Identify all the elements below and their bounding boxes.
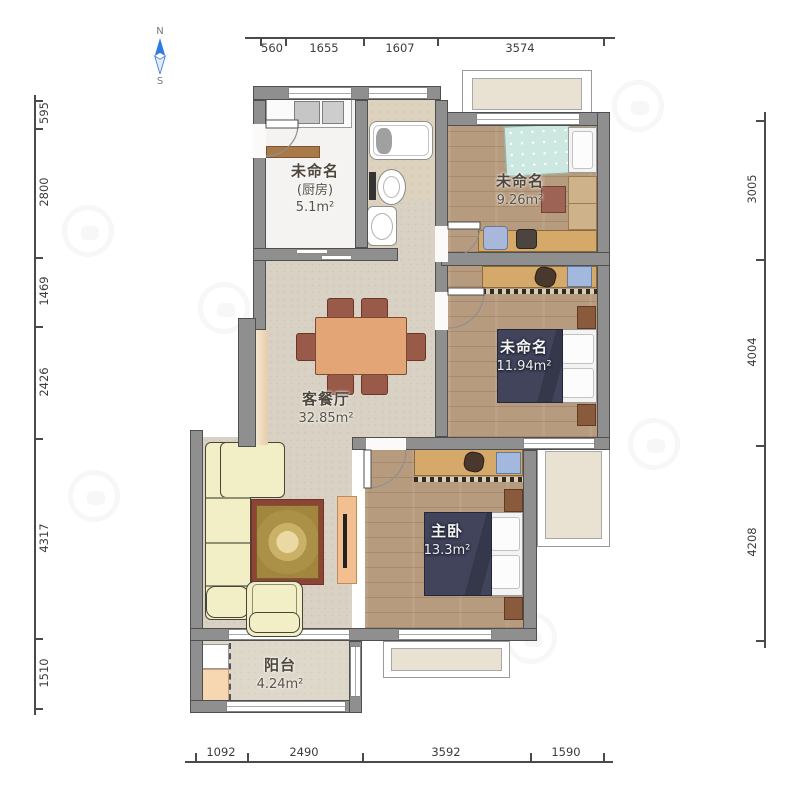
window (523, 438, 595, 449)
dining-chair (327, 298, 354, 319)
dimension-value: 2800 (37, 164, 51, 220)
dimension-tick (437, 38, 439, 46)
dimension-line-top (245, 37, 615, 39)
compass-south-label: S (145, 76, 175, 87)
dimension-line-right (764, 112, 766, 648)
room-name: 阳台 (240, 656, 320, 676)
dimension-tick (247, 753, 249, 761)
sofa-armrest (206, 586, 249, 618)
wall (435, 100, 448, 437)
dimension-tick (363, 38, 365, 46)
bay-window-sill (472, 78, 582, 110)
dimension-value: 3592 (421, 745, 471, 759)
watermark-logo (612, 80, 664, 132)
kitchen-sink (294, 101, 320, 124)
dimension-tick (756, 259, 764, 261)
desk-chair-dark (516, 229, 537, 249)
wardrobe (568, 176, 597, 230)
wall (523, 450, 537, 641)
dimension-line-left (34, 95, 36, 715)
balcony-divider-dashed (229, 643, 231, 700)
room-area: 11.94m² (484, 358, 564, 375)
dimension-value: 1469 (37, 263, 51, 319)
kitchen-stove (322, 101, 344, 124)
dimension-tick (756, 445, 764, 447)
compass-needle-icon (152, 38, 168, 74)
dimension-value: 3574 (495, 41, 545, 55)
room-area: 4.24m² (240, 676, 320, 693)
rug-medallion (256, 505, 319, 579)
wall (441, 252, 610, 266)
bay-window-sill (391, 648, 502, 671)
room-label-living: 客餐厅 32.85m² (286, 390, 366, 427)
toilet-seat (383, 176, 400, 198)
wall (190, 430, 203, 713)
bed-pillow (491, 555, 520, 589)
watermark-logo (62, 205, 114, 257)
dimension-line-bottom (185, 761, 613, 763)
dimension-value: 4317 (37, 510, 51, 566)
dimension-tick (35, 638, 43, 640)
tv-screen (343, 514, 347, 568)
dimension-tick (603, 753, 605, 761)
kitchen-lower-counter (266, 146, 320, 158)
dimension-value: 2426 (37, 354, 51, 410)
dining-chair (405, 333, 426, 361)
bed-pillow (491, 517, 520, 551)
room-label-bedroom-top: 未命名 9.26m² (480, 172, 560, 209)
dining-chair (361, 298, 388, 319)
room-label-bedroom-middle: 未命名 11.94m² (484, 338, 564, 375)
room-name: 未命名 (271, 162, 359, 182)
nightstand (504, 597, 523, 620)
dimension-tick (362, 753, 364, 761)
room-label-balcony: 阳台 4.24m² (240, 656, 320, 693)
bathtub-pillow (376, 128, 392, 154)
desk-chair-blue (483, 226, 508, 250)
dimension-value: 2490 (279, 745, 329, 759)
bedside-rug (482, 289, 597, 294)
dimension-value: 4004 (745, 324, 759, 380)
dimension-tick (35, 438, 43, 440)
bed-pillow (562, 334, 594, 364)
dimension-value: 1510 (37, 645, 51, 701)
floor-plan-canvas: 未命名 (厨房) 5.1m² 未命名 9.26m² 未命名 11.94m² 客餐… (0, 0, 800, 800)
dimension-value: 1092 (196, 745, 246, 759)
dining-chair (296, 333, 317, 361)
room-label-kitchen: 未命名 (厨房) 5.1m² (271, 162, 359, 216)
room-area: 9.26m² (480, 192, 560, 209)
dimension-value: 595 (37, 85, 51, 141)
dimension-value: 1607 (375, 41, 425, 55)
door-gap (366, 438, 406, 450)
dimension-tick (35, 257, 43, 259)
sofa-cushion-seam (206, 542, 250, 544)
folded-shirt (496, 452, 521, 474)
bedside-rug (414, 477, 523, 482)
window (226, 701, 346, 712)
bay-window-sill (545, 451, 602, 539)
room-name: 主卧 (407, 522, 487, 542)
bed-pillow (572, 131, 593, 169)
dimension-tick (530, 753, 532, 761)
dimension-tick (603, 38, 605, 46)
watermark-logo (68, 470, 120, 522)
dimension-value: 3005 (745, 161, 759, 217)
watermark-logo (628, 418, 680, 470)
room-name: 未命名 (480, 172, 560, 192)
room-area: 32.85m² (286, 410, 366, 427)
wall (597, 112, 610, 450)
folded-shirt (567, 266, 592, 287)
window (288, 87, 352, 99)
sliding-door-panel (321, 255, 352, 260)
dimension-value: 1655 (299, 41, 349, 55)
window (368, 87, 428, 99)
dimension-value: 4208 (745, 514, 759, 570)
armchair-back (249, 612, 300, 633)
nightstand (504, 489, 523, 512)
nightstand (577, 404, 596, 426)
door-gap (435, 226, 448, 262)
dimension-tick (35, 326, 43, 328)
window (398, 629, 492, 640)
sliding-door-panel (296, 249, 328, 254)
sofa-cushion-seam (206, 497, 250, 499)
room-alias: (厨房) (271, 182, 359, 199)
tv-stand (337, 496, 357, 584)
nightstand (577, 306, 596, 329)
bathroom-sink-basin (371, 213, 393, 240)
entry-door-gap (253, 124, 266, 158)
window (350, 646, 361, 697)
dimension-tick (35, 708, 43, 710)
room-area: 13.3m² (407, 542, 487, 559)
wall (238, 318, 256, 447)
door-gap (435, 292, 448, 330)
entry-cabinet (254, 330, 268, 445)
dimension-value: 560 (247, 41, 297, 55)
room-name: 客餐厅 (286, 390, 366, 410)
room-name: 未命名 (484, 338, 564, 358)
hallway-floor (398, 200, 435, 261)
dimension-tick (756, 120, 764, 122)
dining-table (315, 317, 407, 375)
dimension-value: 1590 (541, 745, 591, 759)
sofa-chaise (220, 442, 285, 498)
room-area: 5.1m² (271, 199, 359, 216)
toilet-tank (369, 172, 376, 200)
window (476, 113, 580, 125)
dimension-tick (756, 640, 764, 642)
compass-north-label: N (145, 26, 175, 37)
room-label-master: 主卧 13.3m² (407, 522, 487, 559)
bed-pillow (562, 368, 594, 398)
bed-blanket (504, 123, 573, 176)
